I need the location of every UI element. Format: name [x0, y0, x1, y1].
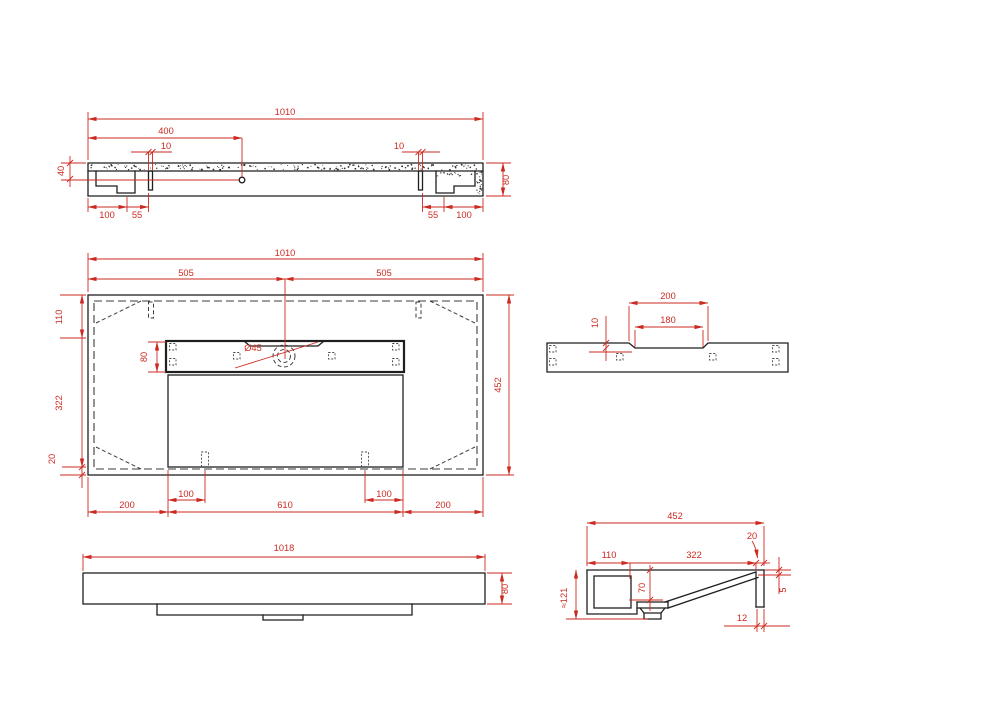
texture-dot: [297, 169, 299, 171]
texture-dot: [135, 166, 136, 167]
dimension-label: 110: [54, 310, 64, 325]
texture-dot: [106, 167, 107, 168]
texture-dot: [456, 165, 457, 166]
deck-section-view: 20018010: [547, 291, 788, 372]
texture-dot: [476, 168, 477, 169]
fixing-insert: [550, 346, 557, 353]
profile-geometry: [88, 163, 483, 196]
top-profile-view: 1010400101040801005555100: [56, 107, 511, 220]
texture-dot: [298, 166, 299, 167]
texture-dot: [180, 165, 181, 166]
texture-dot: [139, 169, 141, 171]
texture-dot: [412, 167, 413, 168]
texture-dot: [361, 167, 362, 168]
texture-dot: [336, 166, 337, 167]
dimension-lines: [83, 554, 512, 604]
hidden-edge-outline: [94, 301, 477, 469]
texture-dot: [362, 168, 364, 170]
texture-dot: [189, 164, 191, 166]
texture-dot: [287, 165, 288, 166]
corner-chamfer-bl: [96, 447, 141, 469]
texture-dot: [184, 165, 185, 166]
texture-dot: [168, 165, 170, 167]
dimension-label: 200: [119, 500, 135, 510]
plan-geometry: [88, 295, 483, 475]
texture-dot: [479, 191, 480, 192]
dimension-label: 1010: [275, 248, 296, 258]
fixing-insert: [773, 346, 780, 353]
dimension-label: 10: [161, 141, 171, 151]
texture-dot: [163, 166, 164, 167]
texture-dot: [466, 168, 467, 169]
texture-dot: [329, 168, 331, 170]
dimension-label: 70: [637, 583, 647, 593]
texture-dot: [373, 169, 375, 171]
dimension-label: 20: [747, 531, 757, 541]
texture-dot: [182, 164, 183, 165]
dimension-label: 55: [428, 210, 438, 220]
texture-dot: [293, 165, 294, 166]
texture-dot: [366, 169, 367, 170]
texture-dot: [476, 181, 477, 182]
texture-dot: [479, 188, 480, 189]
right-slot: [419, 171, 423, 190]
texture-dot: [474, 164, 476, 166]
texture-dot: [218, 167, 219, 168]
texture-dot: [441, 169, 442, 170]
texture-dot: [479, 182, 480, 183]
dimension-label: 80: [500, 584, 510, 594]
texture-dot: [420, 165, 421, 166]
elevation-underside-step: [157, 604, 412, 615]
texture-dot: [166, 168, 167, 169]
texture-dot: [471, 174, 473, 176]
texture-dot: [411, 164, 413, 166]
dimension-label: 5: [778, 587, 788, 592]
texture-dot: [479, 179, 481, 181]
dimension-label: 110: [602, 550, 617, 560]
fixing-insert: [170, 359, 177, 366]
dimension-labels: 101880: [274, 543, 510, 594]
texture-dot: [108, 166, 109, 167]
texture-dot: [118, 164, 119, 165]
left-slot: [149, 171, 153, 190]
texture-dot: [251, 166, 252, 167]
texture-dot: [334, 169, 335, 170]
texture-dot: [273, 168, 275, 170]
texture-dot: [125, 167, 126, 168]
texture-dot: [399, 169, 400, 170]
dimension-lines: [61, 112, 511, 212]
texture-dot: [167, 167, 169, 169]
dimension-label: 100: [376, 489, 392, 499]
texture-dot: [228, 167, 229, 168]
texture-dot: [223, 166, 224, 167]
texture-dot: [390, 165, 391, 166]
texture-dot: [222, 167, 223, 168]
dimension-labels: 101050550511080Ø453222045210010020061020…: [47, 248, 503, 510]
texture-dot: [322, 165, 323, 166]
basin-recess: [168, 375, 403, 467]
texture-dot: [480, 180, 482, 182]
technical-drawing-page: 1010400101040801005555100: [0, 0, 1000, 707]
texture-dot: [481, 174, 482, 175]
dimension-label: ≈121: [559, 588, 569, 609]
dimension-label: 12: [737, 613, 747, 623]
texture-dot: [348, 166, 350, 168]
front-elevation-view: 101880: [83, 543, 512, 620]
mounting-hole: [239, 177, 245, 183]
texture-dot: [440, 172, 441, 173]
texture-dot: [367, 168, 368, 169]
texture-dot: [452, 165, 454, 167]
texture-dot: [206, 165, 207, 166]
texture-dot: [398, 169, 399, 170]
texture-dot: [454, 166, 456, 168]
texture-dot: [479, 186, 480, 187]
dimension-label: 322: [686, 550, 702, 560]
texture-dot: [90, 167, 91, 168]
texture-dot: [382, 166, 383, 167]
texture-dot: [337, 169, 339, 171]
deck-section-outline: [547, 343, 788, 372]
dimension-lines: [589, 303, 708, 361]
texture-dot: [191, 169, 193, 171]
drain-trap-bottom: [644, 613, 661, 619]
texture-dot: [389, 169, 390, 170]
dimension-label: 80: [501, 175, 511, 185]
texture-dot: [169, 167, 170, 168]
texture-dot: [463, 165, 464, 166]
dimension-label: 200: [660, 291, 676, 301]
texture-dot: [388, 167, 389, 168]
texture-dot: [212, 169, 214, 171]
texture-dot: [476, 189, 477, 190]
texture-dot: [401, 165, 403, 167]
dimension-label: 20: [47, 454, 57, 464]
hidden-slot-left: [149, 302, 154, 318]
dimension-label: 100: [456, 210, 472, 220]
dimension-label: 400: [158, 126, 174, 136]
corner-chamfer-tr: [430, 301, 475, 323]
texture-dot: [307, 167, 309, 169]
texture-dot: [431, 166, 432, 167]
elevation-geometry: [83, 573, 485, 620]
fixing-insert: [393, 359, 400, 366]
washbasin-technical-drawing: 1010400101040801005555100: [0, 0, 1000, 707]
fixing-insert: [550, 359, 557, 366]
texture-dot: [302, 164, 303, 165]
texture-dot: [354, 164, 355, 165]
basin-outline: [88, 295, 483, 475]
texture-dot: [358, 166, 359, 167]
drain-trap-chamfer: [640, 608, 665, 613]
fixing-insert: [329, 353, 336, 360]
texture-dot: [454, 172, 455, 173]
section-back-channel-hollow: [594, 576, 631, 608]
texture-dot: [481, 190, 482, 191]
texture-dot: [133, 165, 135, 167]
texture-dot: [257, 169, 258, 170]
texture-dot: [318, 167, 320, 169]
sloped-bottom-outer: [668, 578, 758, 609]
texture-dot: [366, 167, 367, 168]
texture-dot: [207, 167, 209, 169]
texture-dot: [481, 171, 483, 173]
dimension-label: 200: [435, 500, 451, 510]
texture-dot: [249, 165, 251, 167]
texture-dot: [201, 169, 203, 171]
dimension-label: 610: [277, 500, 293, 510]
fixing-insert: [617, 354, 624, 361]
texture-dot: [371, 165, 373, 167]
texture-dot: [457, 174, 458, 175]
fixing-insert: [393, 344, 400, 351]
clip-mark-right: [362, 452, 369, 467]
texture-dot: [323, 168, 325, 170]
dimension-label: 180: [660, 315, 676, 325]
texture-dot: [469, 167, 471, 169]
texture-dot: [414, 168, 415, 169]
dimension-label: Ø45: [244, 343, 262, 353]
texture-dot: [314, 164, 316, 166]
texture-dot: [184, 168, 185, 169]
drain-hole-outer: [273, 345, 295, 367]
texture-dot: [419, 164, 420, 165]
dimension-label: 1010: [275, 107, 296, 117]
texture-dot: [405, 167, 406, 168]
texture-dot: [268, 166, 269, 167]
texture-dot: [178, 165, 180, 167]
sloped-bottom-inner: [665, 572, 756, 602]
dimension-labels: 20018010: [590, 291, 676, 328]
texture-dot: [107, 169, 108, 170]
texture-dot: [116, 169, 117, 170]
texture-dot: [381, 168, 382, 169]
texture-dot: [394, 167, 396, 169]
texture-dot: [349, 164, 351, 166]
texture-dot: [340, 169, 341, 170]
texture-dot: [131, 167, 133, 169]
texture-dot: [468, 165, 469, 166]
dimension-label: 40: [56, 166, 66, 176]
elevation-drain-stub: [263, 615, 303, 620]
texture-dot: [92, 164, 93, 165]
texture-dot: [255, 166, 256, 167]
deck-geometry: [547, 343, 788, 372]
texture-dot: [128, 169, 129, 170]
texture-dot: [340, 165, 342, 167]
elevation-body: [83, 573, 485, 604]
hidden-slot-right: [416, 302, 421, 318]
texture-dot: [186, 166, 187, 167]
texture-dot: [104, 166, 106, 168]
texture-dot: [408, 165, 409, 166]
dimension-label: 1018: [274, 543, 295, 553]
texture-dot: [452, 174, 453, 175]
texture-dot: [138, 168, 139, 169]
texture-dot: [428, 167, 429, 168]
texture-dot: [264, 168, 266, 170]
texture-dot: [480, 187, 481, 188]
side-section-view: 45211032220570≈12112: [559, 511, 791, 632]
texture-dot: [460, 175, 461, 176]
texture-dot: [447, 173, 448, 174]
texture-dot: [161, 166, 162, 167]
texture-dot: [432, 164, 434, 166]
texture-dot: [478, 192, 479, 193]
texture-dot: [424, 167, 425, 168]
dimension-label: 322: [54, 395, 64, 411]
dimension-lines: [60, 253, 514, 517]
texture-dot: [365, 164, 366, 165]
section-geometry: [587, 570, 764, 619]
texture-dot: [192, 167, 193, 168]
texture-dot: [479, 172, 480, 173]
texture-dot: [450, 173, 451, 174]
texture-dot: [294, 169, 295, 170]
texture-dot: [183, 166, 184, 167]
texture-dot: [180, 168, 181, 169]
texture-dot: [156, 168, 157, 169]
fixing-insert: [170, 344, 177, 351]
texture-dot: [321, 169, 322, 170]
texture-dot: [461, 164, 463, 166]
dimension-label: 505: [178, 268, 194, 278]
texture-dot: [477, 182, 478, 183]
texture-dot: [220, 169, 222, 171]
texture-dot: [335, 168, 337, 170]
corner-chamfer-br: [430, 447, 475, 469]
texture-dot: [457, 165, 458, 166]
texture-dot: [294, 166, 295, 167]
texture-dot: [155, 164, 156, 165]
texture-dot: [420, 168, 421, 169]
texture-dot: [479, 193, 480, 194]
texture-dot: [253, 165, 254, 166]
texture-dot: [199, 169, 200, 170]
texture-dot: [443, 172, 445, 174]
plan-view: 101050550511080Ø453222045210010020061020…: [47, 248, 514, 517]
dimension-label: 452: [667, 511, 683, 521]
texture-dot: [144, 169, 145, 170]
texture-dot: [342, 168, 343, 169]
texture-dot: [355, 168, 357, 170]
fixing-insert: [773, 359, 780, 366]
texture-dot: [455, 173, 456, 174]
texture-dot: [465, 164, 466, 165]
clip-mark-left: [202, 452, 209, 467]
texture-dot: [150, 168, 151, 169]
dimension-label: 10: [394, 141, 404, 151]
dimension-label: 80: [139, 352, 149, 362]
texture-dot: [244, 164, 246, 166]
texture-dot: [221, 165, 222, 166]
left-pocket: [96, 171, 135, 193]
dimension-label: 100: [99, 210, 115, 220]
texture-dot: [449, 174, 451, 176]
fixing-insert: [234, 353, 241, 360]
dimension-label: 55: [132, 210, 142, 220]
texture-dot: [459, 175, 460, 176]
texture-dot: [114, 167, 116, 169]
texture-dot: [311, 166, 312, 167]
corner-chamfer-tl: [96, 301, 141, 323]
texture-dot: [481, 184, 482, 185]
texture-dot: [126, 165, 127, 166]
texture-dot: [283, 169, 284, 170]
right-pocket: [436, 171, 475, 193]
texture-dot: [476, 173, 478, 175]
texture-dot: [481, 188, 483, 190]
dimension-label: 100: [178, 489, 194, 499]
texture-dot: [437, 175, 438, 176]
texture-dot: [479, 176, 480, 177]
texture-dot: [110, 164, 112, 166]
texture-dot: [344, 168, 346, 170]
texture-dot: [124, 166, 125, 167]
texture-dot: [281, 164, 282, 165]
dimension-label: 10: [590, 318, 600, 328]
texture-dot: [358, 165, 359, 166]
texture-dot: [271, 166, 272, 167]
fixing-insert: [710, 354, 717, 361]
texture-dot: [238, 167, 239, 168]
dimension-label: 505: [376, 268, 392, 278]
texture-dot: [449, 169, 450, 170]
texture-dot: [217, 166, 218, 167]
dimension-label: 452: [493, 377, 503, 393]
texture-dot: [385, 167, 387, 169]
